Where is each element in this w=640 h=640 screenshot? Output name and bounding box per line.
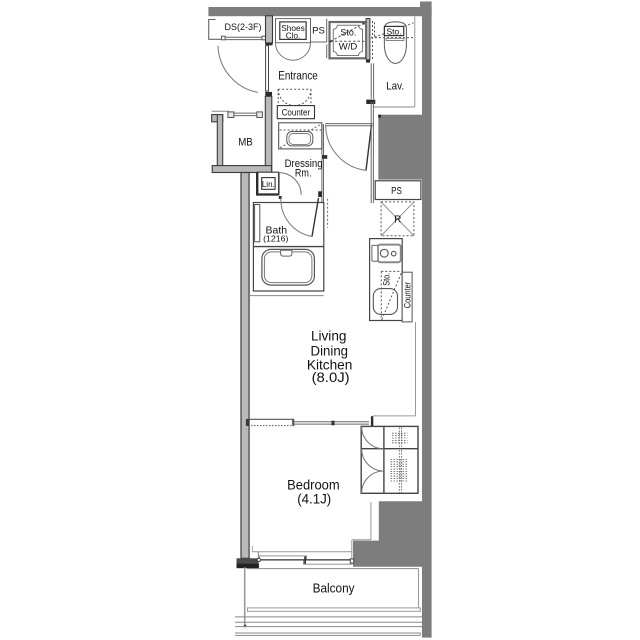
svg-text:Lin.: Lin. [262,180,275,189]
svg-text:Balcony: Balcony [313,581,355,596]
svg-text:PS: PS [312,26,325,37]
svg-text:(8.0J): (8.0J) [312,370,350,386]
svg-text:R: R [394,215,401,226]
svg-text:PS: PS [391,186,402,197]
svg-text:Sto.: Sto. [382,273,392,286]
svg-text:DS(2-3F): DS(2-3F) [225,22,262,33]
svg-text:Sto.: Sto. [340,27,356,37]
svg-text:Counter: Counter [282,107,311,117]
svg-text:MB: MB [238,136,253,148]
svg-text:Lav.: Lav. [386,81,404,93]
svg-text:W/D: W/D [339,41,358,52]
svg-text:(1216): (1216) [263,233,288,243]
svg-text:Sto.: Sto. [386,26,401,36]
svg-text:Living: Living [311,329,347,345]
svg-text:Entrance: Entrance [278,71,318,83]
svg-text:Clo.: Clo. [286,31,301,40]
svg-text:Rm.: Rm. [295,167,312,179]
svg-text:Counter: Counter [402,282,412,309]
svg-text:(4.1J): (4.1J) [297,491,331,507]
